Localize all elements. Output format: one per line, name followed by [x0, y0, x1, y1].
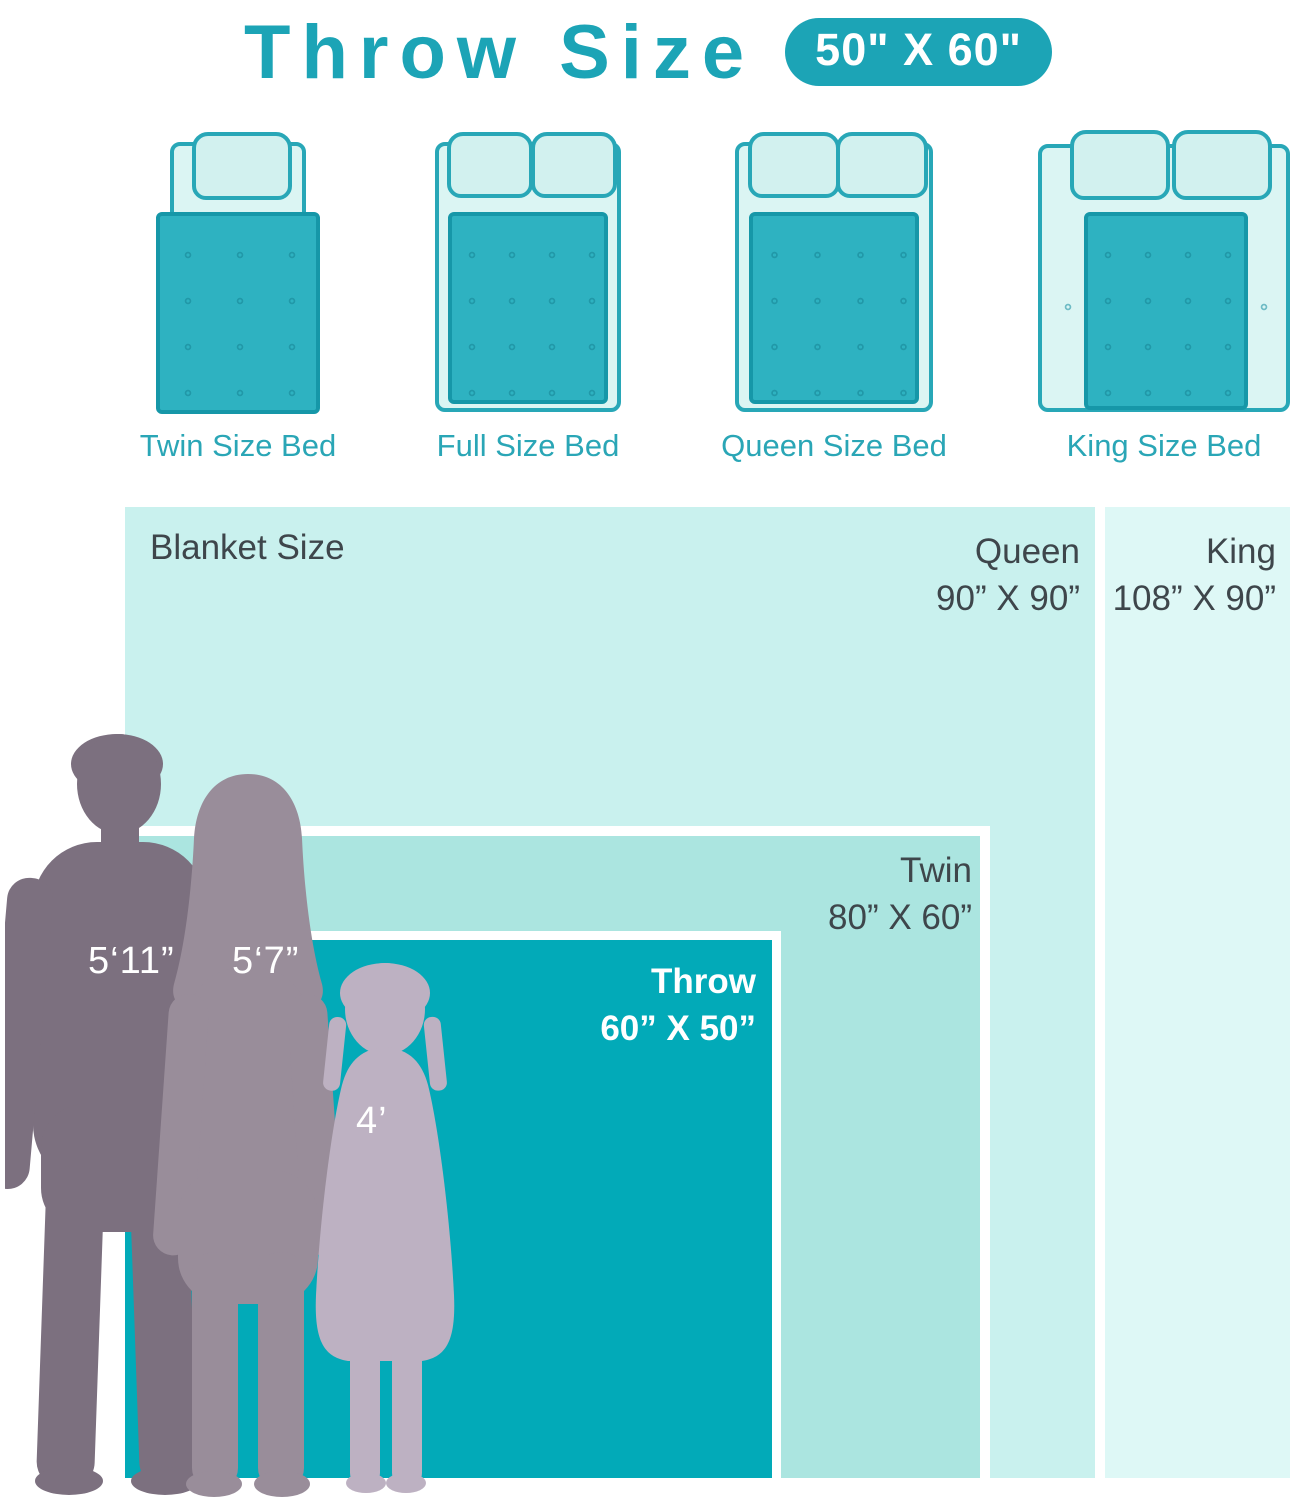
full-pillow-left: [447, 132, 533, 198]
throw-dimensions-badge: 50" X 60": [785, 18, 1052, 86]
throw-size-name: Throw: [600, 958, 756, 1005]
king-bed-label: King Size Bed: [1014, 428, 1296, 464]
queen-size-dimensions: 90” X 90”: [936, 575, 1080, 622]
page-title: Throw Size: [244, 9, 755, 96]
girl-height-label: 4’: [356, 1100, 388, 1143]
full-bed-icon: [435, 128, 621, 414]
full-bed-label: Full Size Bed: [378, 428, 678, 464]
woman-height-label: 5‘7”: [232, 940, 299, 983]
queen-pillow-left: [748, 132, 840, 198]
twin-size-label: Twin 80” X 60”: [828, 847, 972, 941]
king-blanket: [1084, 212, 1248, 410]
king-mattress-dots-right: [1256, 284, 1272, 344]
twin-pillow: [192, 132, 292, 200]
king-size-name: King: [1113, 528, 1276, 575]
twin-size-dimensions: 80” X 60”: [828, 894, 972, 941]
queen-pillow-right: [836, 132, 928, 198]
king-size-label: King 108” X 90”: [1113, 528, 1276, 622]
man-height-label: 5‘11”: [88, 940, 175, 983]
king-pillow-left: [1070, 130, 1170, 200]
twin-size-name: Twin: [828, 847, 972, 894]
full-blanket: [448, 212, 608, 404]
king-mattress-dots-left: [1060, 284, 1076, 344]
queen-bed-icon: [735, 128, 933, 414]
twin-blanket: [156, 212, 320, 414]
throw-size-label: Throw 60” X 50”: [600, 958, 756, 1052]
queen-size-name: Queen: [936, 528, 1080, 575]
throw-size-infographic: Blanket Size Queen 90” X 90” King 108” X…: [0, 0, 1296, 1500]
girl-silhouette: [300, 955, 470, 1495]
twin-bed-label: Twin Size Bed: [88, 428, 388, 464]
king-bed-icon: [1038, 128, 1290, 414]
blanket-size-heading: Blanket Size: [150, 528, 345, 568]
queen-bed-label: Queen Size Bed: [684, 428, 984, 464]
header: Throw Size 50" X 60": [0, 0, 1296, 104]
full-pillow-right: [531, 132, 617, 198]
queen-size-label: Queen 90” X 90”: [936, 528, 1080, 622]
queen-blanket: [749, 212, 919, 404]
king-size-dimensions: 108” X 90”: [1113, 575, 1276, 622]
throw-size-dimensions: 60” X 50”: [600, 1005, 756, 1052]
twin-bed-icon: [156, 128, 320, 414]
king-pillow-right: [1172, 130, 1272, 200]
